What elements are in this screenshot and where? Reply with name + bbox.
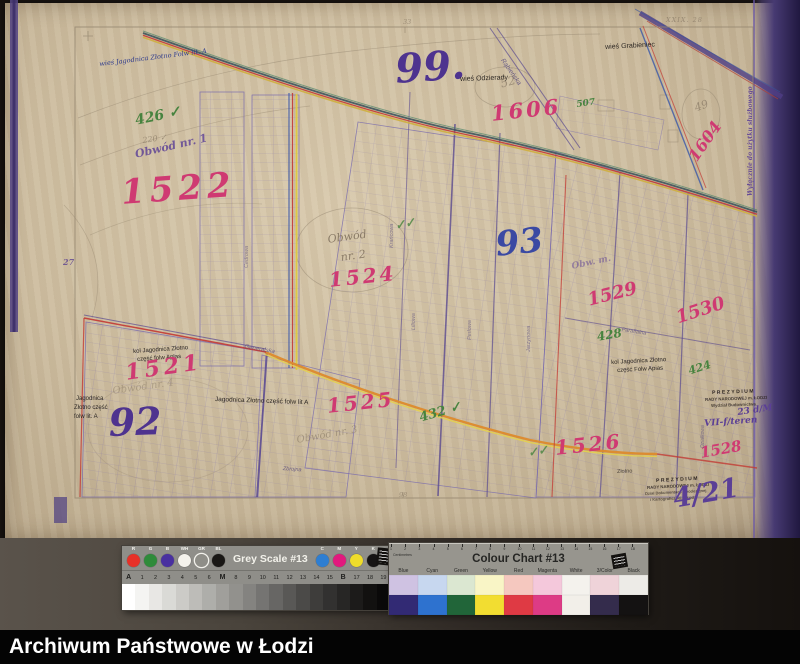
settlement-label-jagodnica-row: Jagodnica Złotno część folw lit A — [215, 397, 309, 407]
grey-step-label: M — [216, 574, 229, 581]
color-dot-b: B — [161, 554, 174, 567]
grey-step-label: 2 — [149, 575, 162, 581]
colour-label-white: White — [562, 568, 591, 574]
grey-step-label: A — [122, 574, 135, 581]
archive-photo-stage: wieś Jagodnica Złotno Folw lit. A426 ✓22… — [0, 0, 800, 664]
green-check-marks: ✓✓ — [394, 216, 416, 232]
ruler-tick: 4 — [434, 544, 448, 547]
parcel-number-1529: 1529 — [586, 280, 639, 310]
district-number-93: 93 — [494, 223, 545, 262]
swatch-light-white — [562, 575, 591, 595]
grey-step-swatch — [323, 584, 336, 610]
ruler-tick: 10 — [519, 544, 533, 547]
ruler-tick: 17 — [618, 544, 632, 547]
street-label-liliowa: Liliowa — [412, 313, 418, 330]
ruler-tick: 14 — [575, 544, 589, 547]
swatch-full-blue — [389, 595, 418, 615]
grey-step-label: 15 — [323, 575, 336, 581]
swatch-full-3-color — [590, 595, 619, 615]
grey-step-swatch — [162, 584, 175, 610]
grey-scale-step-labels: A123456M89101112131415B171819 — [122, 570, 390, 584]
archive-caption-text: Archiwum Państwowe w Łodzi — [9, 635, 314, 658]
swatch-light-black — [619, 575, 648, 595]
grey-step-label: 4 — [176, 575, 189, 581]
grey-step-label: 8 — [229, 575, 242, 581]
grey-step-swatch — [229, 584, 242, 610]
street-label-jarzynowa: Jarzynowa — [527, 326, 533, 352]
green-number-424: 424 — [687, 359, 712, 377]
swatch-light-cyan — [418, 575, 447, 595]
village-label-grabieniec: wieś Grabieniec — [605, 41, 655, 51]
swatch-full-green — [447, 595, 476, 615]
grey-step-swatch — [337, 584, 350, 610]
color-dot-g: G — [144, 554, 157, 567]
settlement-label-jagodnica-a-3: folw lit. A — [74, 414, 98, 420]
color-dot-m: M — [333, 554, 346, 567]
swatch-full-yellow — [475, 595, 504, 615]
grey-step-swatch — [350, 584, 363, 610]
street-label-zbrojna: Zbrojna — [283, 467, 302, 474]
stamp-official-use: Wyłącznie do użytku służbowego — [748, 86, 754, 196]
ruler: 123456789101112131415161718 — [391, 544, 646, 552]
grey-scale-header: RGBWHGRBL Grey Scale #13 CMYK — [122, 546, 390, 570]
parcel-number-1604: 1604 — [686, 119, 725, 165]
grey-step-swatch — [216, 584, 229, 610]
ruler-tick: 8 — [490, 544, 504, 547]
colour-label-green: Green — [447, 568, 476, 574]
barcode-patch — [611, 553, 628, 569]
colour-chart-title: Colour Chart #13 — [389, 553, 648, 565]
street-label-dzialkowa: Działkowa — [701, 425, 706, 448]
obwod-label-4: Obwód nr. 4 — [112, 378, 174, 396]
color-dot-bl: BL — [212, 554, 225, 567]
street-label-generalska: Generalska — [244, 344, 275, 355]
street-label-krancowa: Krańcowa — [390, 224, 396, 248]
grey-scale-cmyk-dots: CMYK — [314, 554, 382, 570]
street-label-zlotno: Złotno — [617, 469, 632, 475]
colour-label-red: Red — [504, 568, 533, 574]
grey-step-label: 1 — [135, 575, 148, 581]
parcel-number-1526: 1526 — [554, 431, 623, 458]
grey-step-swatch — [176, 584, 189, 610]
swatch-full-white — [562, 595, 591, 615]
grey-step-label: B — [337, 574, 350, 581]
grey-step-swatch — [122, 584, 135, 610]
ruler-tick: 2 — [405, 544, 419, 547]
grey-step-label: 14 — [310, 575, 323, 581]
obwod-label-2-line2: nr. 2 — [340, 249, 366, 263]
ruler-tick: 6 — [462, 544, 476, 547]
sheet-number-top: XXIX. 28 — [666, 17, 703, 24]
parcel-number-1525: 1525 — [326, 389, 395, 416]
swatch-light-green — [447, 575, 476, 595]
obwod-label-3: Obwód nr. 3 — [296, 425, 358, 446]
parcel-number-1606: 1606 — [490, 96, 562, 124]
ruler-tick: 12 — [547, 544, 561, 547]
green-scrawl-1526: ✓✓ — [527, 444, 549, 459]
swatch-full-magenta — [533, 595, 562, 615]
color-dot-c: C — [316, 554, 329, 567]
ruler-tick: 11 — [533, 544, 547, 547]
parcel-number-1530: 1530 — [674, 295, 727, 328]
ruler-tick: 7 — [476, 544, 490, 547]
grey-step-swatch — [283, 584, 296, 610]
district-number-92: 92 — [108, 402, 162, 442]
ruler-tick: 13 — [561, 544, 575, 547]
colour-label-magenta: Magenta — [533, 568, 562, 574]
ruler-tick: 18 — [632, 544, 646, 547]
colour-row-light — [389, 575, 648, 595]
green-number-432: 432 ✓ — [418, 400, 462, 424]
street-label-cedrowa: Cedrowa — [245, 246, 251, 268]
handwritten-ref: VII-f/teren — [704, 416, 758, 429]
grey-step-label: 9 — [243, 575, 256, 581]
parcel-number-1524: 1524 — [328, 263, 397, 290]
ruler-tick: 1 — [391, 544, 405, 547]
grey-step-label: 11 — [269, 575, 282, 581]
colour-label-yellow: Yellow — [475, 568, 504, 574]
grey-step-label: 5 — [189, 575, 202, 581]
swatch-full-black — [619, 595, 648, 615]
ruler-tick: 16 — [604, 544, 618, 547]
swatch-light-red — [504, 575, 533, 595]
grey-step-label: 10 — [256, 575, 269, 581]
grey-step-label: 6 — [202, 575, 215, 581]
grey-scale-title: Grey Scale #13 — [233, 553, 308, 565]
grey-step-label: 12 — [283, 575, 296, 581]
swatch-light-3-color — [590, 575, 619, 595]
district-number-99: 99. — [394, 45, 466, 90]
color-dot-gr: GR — [195, 554, 208, 567]
grey-step-swatch — [256, 584, 269, 610]
margin-number-33: 33 — [403, 19, 411, 26]
grey-step-swatch — [243, 584, 256, 610]
swatch-full-red — [504, 595, 533, 615]
grey-step-swatch — [269, 584, 282, 610]
pencil-scrawl-obw: Obw. m. — [571, 255, 612, 272]
green-number-428: 428 — [596, 327, 623, 343]
colour-label-black: Black — [619, 568, 648, 574]
grey-step-label: 13 — [296, 575, 309, 581]
ruler-tick: 15 — [589, 544, 603, 547]
parcel-number-1522: 1522 — [120, 168, 237, 210]
street-label-perlowa: Perłowa — [468, 320, 474, 340]
pencil-number-49: 49 — [693, 98, 710, 113]
grey-step-label: 3 — [162, 575, 175, 581]
obwod-label-2-line1: Obwód — [327, 229, 367, 245]
ruler-tick: 3 — [419, 544, 433, 547]
colour-chart-header: 123456789101112131415161718 Centimetres … — [389, 543, 648, 575]
colour-chart: 123456789101112131415161718 Centimetres … — [389, 543, 648, 614]
color-dot-wh: WH — [178, 554, 191, 567]
ruler-tick: 5 — [448, 544, 462, 547]
swatch-light-blue — [389, 575, 418, 595]
colour-column-labels: BlueCyanGreenYellowRedMagentaWhite3/Colo… — [389, 568, 648, 574]
settlement-label-jagodnica-a-1: Jagodnica — [76, 396, 103, 402]
green-number-426: 426 ✓ — [134, 104, 182, 127]
green-number-507: 507 — [576, 98, 596, 110]
grey-step-swatch — [296, 584, 309, 610]
grey-step-label: 17 — [350, 575, 363, 581]
settlement-label-kol-jagodnica-east-2: część Folw Apias — [617, 366, 663, 374]
village-label-jagodnica-folw: wieś Jagodnica Złotno Folw lit. A — [99, 48, 207, 68]
colour-row-full — [389, 595, 648, 615]
grey-step-swatch — [135, 584, 148, 610]
settlement-label-jagodnica-a-2: Złotno część — [74, 405, 108, 411]
swatch-light-magenta — [533, 575, 562, 595]
street-label-parafialna: Parafialna — [621, 328, 646, 337]
swatch-light-yellow — [475, 575, 504, 595]
grey-scale-rgb-dots: RGBWHGRBL — [125, 554, 227, 570]
grey-step-swatch — [202, 584, 215, 610]
margin-number-98: 98 — [399, 492, 407, 499]
colour-label-blue: Blue — [389, 568, 418, 574]
settlement-label-kol-jagodnica-east-1: kol Jagodnica Złotno — [611, 357, 666, 366]
grey-step-swatch — [149, 584, 162, 610]
grey-scale-chart: RGBWHGRBL Grey Scale #13 CMYK A123456M89… — [122, 546, 390, 610]
grey-step-swatch — [189, 584, 202, 610]
grey-step-label: 18 — [363, 575, 376, 581]
archive-caption-bar: Archiwum Państwowe w Łodzi — [0, 630, 800, 664]
colour-label-cyan: Cyan — [418, 568, 447, 574]
margin-number-27: 27 — [63, 258, 74, 266]
ruler-tick: 9 — [504, 544, 518, 547]
swatch-full-cyan — [418, 595, 447, 615]
grey-scale-gradient — [122, 584, 390, 610]
color-dot-y: Y — [350, 554, 363, 567]
map-annotations: wieś Jagodnica Złotno Folw lit. A426 ✓22… — [0, 0, 800, 540]
grey-step-swatch — [310, 584, 323, 610]
grey-step-swatch — [363, 584, 376, 610]
color-dot-r: R — [127, 554, 140, 567]
